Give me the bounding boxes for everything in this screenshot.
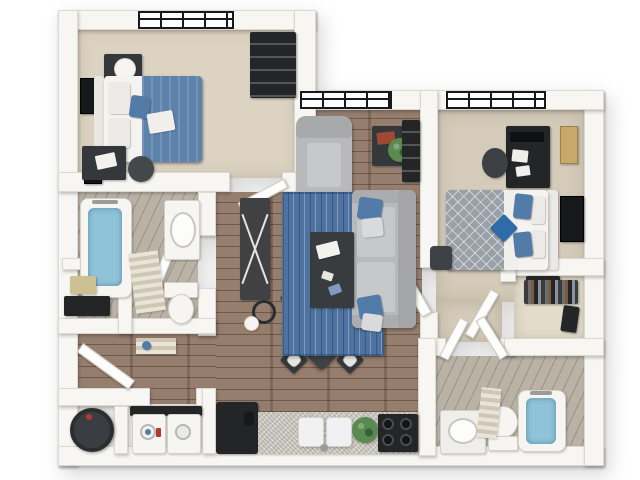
refrigerator [216,402,258,454]
armchair-cushion [306,142,342,188]
bathroom-2-tub-faucet [530,391,552,395]
linen-niche-basket [70,276,96,294]
cooktop-burner-4 [400,434,412,446]
ladder-bookshelf [402,120,420,182]
wall-outer-right [584,90,604,466]
washer-detergent [156,428,161,437]
floorplan [0,0,640,480]
cooktop-burner-1 [382,418,394,430]
living-room-window-panes [302,93,390,107]
bedroom-2-stool [430,246,452,270]
bathroom-2-tub-water [526,398,556,444]
washer-drum [145,429,151,435]
living-room-window [300,91,392,109]
bedroom-2-desk-paper-2 [515,165,530,177]
kitchen-sink-left-basin [298,417,324,447]
bed-2-pillow-blue-upper [513,193,534,220]
bedroom-2-desk-paper-1 [511,149,528,163]
bedroom-1-closet-shelving [250,32,296,98]
floor-lamp-base [244,316,259,331]
armchair-back [296,116,352,138]
bedroom-2-window-panes [448,93,544,107]
kitchen-plant [352,417,378,443]
wall-bathroom-1-bottom [58,318,216,334]
wall-bathroom-2-top-b [504,338,604,356]
kitchen-sink-right-basin [326,417,352,447]
water-heater [70,408,114,452]
wall-utility-right [202,388,216,454]
bed-1-pillow-upper [108,82,130,114]
bedroom-2-corkboard [560,126,578,164]
wall-utility-top-a [58,388,150,406]
bedroom-1-window [138,11,234,29]
bedroom-1-window-panes [140,13,232,27]
bathroom-1-toilet-bowl [168,294,194,324]
wall-utility-divider [114,406,128,454]
bedroom-2-office-chair [482,148,508,178]
sofa-pillow-light-bottom [361,313,383,333]
wall-bathroom-1-right-a [198,192,216,236]
water-heater-valve [86,414,92,420]
bathroom-2-sink [448,418,478,444]
kitchen-faucet [320,444,328,452]
floorplan-canvas [0,0,640,480]
wall-bathroom-2-left [418,338,436,456]
entry-watering-can [142,341,151,350]
sofa-back [398,190,416,328]
wall-bedroom-2-left-a [420,90,438,268]
bedroom-2-window [446,91,546,109]
linen-niche-storage [64,296,110,316]
cooktop-burner-3 [382,434,394,446]
closet-hanging-clothes [524,280,578,304]
cooktop-burner-2 [400,418,412,430]
sofa-pillow-light-top [361,217,384,238]
bed-2-pillow-blue-lower [513,231,534,258]
bathroom-1-sink [170,212,196,248]
bedroom-2-wall-art [560,196,584,242]
bed-1-pillow-lower [108,118,130,148]
tv-console [240,198,270,300]
bathroom-1-tub-water [88,208,122,286]
refrigerator-handle [244,412,254,426]
bedroom-2-monitor [510,132,544,142]
dryer-door [175,424,191,440]
bathroom-1-tub-faucet [92,200,118,204]
bedroom-1-desk-chair [128,156,154,182]
